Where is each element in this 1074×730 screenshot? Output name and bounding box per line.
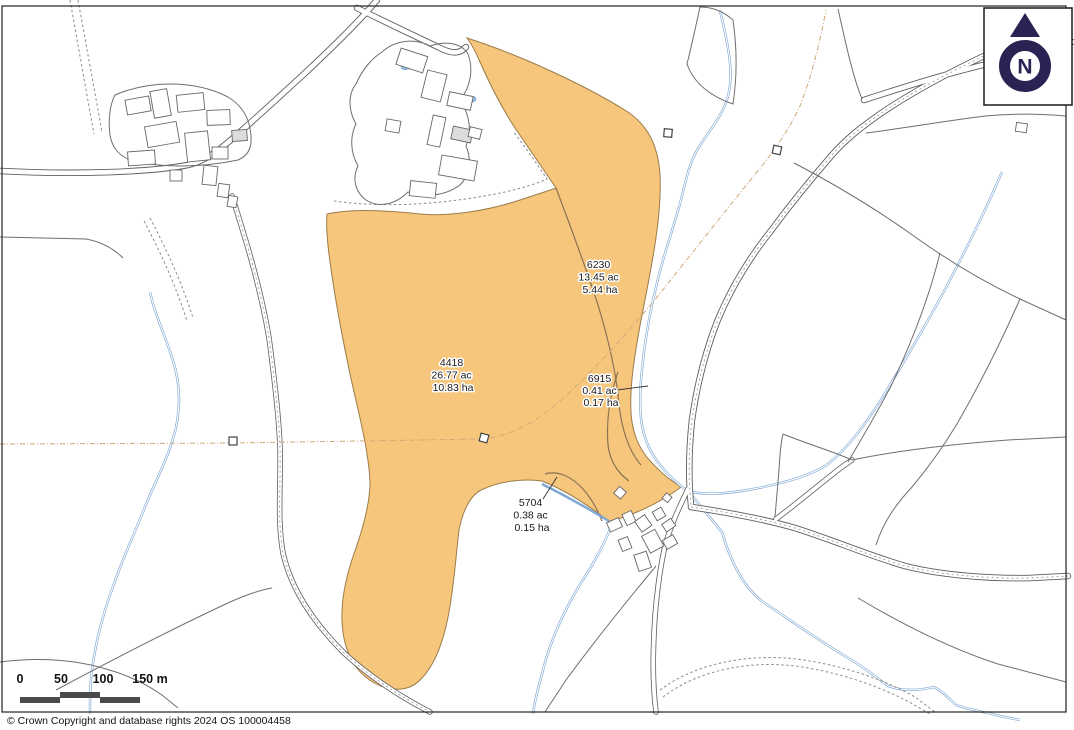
boundary-marker (772, 145, 781, 154)
north-arrow: N (984, 8, 1072, 105)
boundary-marker (229, 437, 237, 445)
boundary-marker (664, 129, 673, 138)
scale-segment (20, 697, 60, 703)
boundary-marker (479, 433, 489, 443)
scale-bar: 0 50 100 150 m (17, 672, 168, 703)
scale-segment (100, 697, 140, 703)
highlighted-parcels[interactable] (327, 38, 681, 689)
scale-label-0: 0 (17, 672, 24, 686)
copyright-text: © Crown Copyright and database rights 20… (7, 715, 291, 727)
parcel-area[interactable] (327, 38, 681, 689)
parcel-label-6915: 6915 0.41 ac 0.17 ha (582, 373, 619, 409)
north-arrow-label: N (1017, 56, 1032, 79)
scale-label-50: 50 (54, 672, 68, 686)
map-canvas[interactable]: 6230 13.45 ac 5.44 ha 4418 26.77 ac 10.8… (0, 0, 1074, 730)
scale-segment (60, 692, 100, 698)
scale-label-150: 150 m (132, 672, 167, 686)
scale-label-100: 100 (93, 672, 114, 686)
map-viewport: 6230 13.45 ac 5.44 ha 4418 26.77 ac 10.8… (0, 0, 1074, 730)
parcel-label-5704: 5704 0.38 ac 0.15 ha (513, 497, 550, 534)
